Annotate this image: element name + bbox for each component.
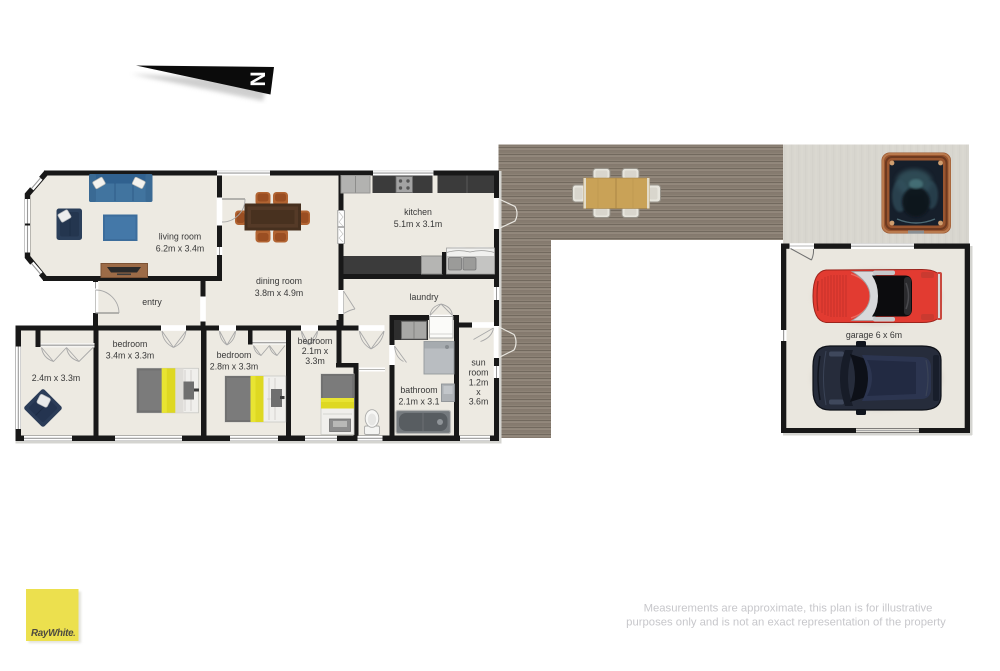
svg-text:dining room: dining room [256, 276, 302, 286]
svg-text:3.6m: 3.6m [469, 397, 489, 407]
svg-text:bedroom: bedroom [217, 350, 252, 360]
svg-text:2.8m x 3.3m: 2.8m x 3.3m [210, 362, 258, 372]
svg-text:garage 6 x 6m: garage 6 x 6m [846, 330, 902, 340]
svg-text:bathroom: bathroom [400, 385, 437, 395]
svg-text:RayWhite.: RayWhite. [31, 628, 75, 639]
svg-text:laundry: laundry [410, 292, 439, 302]
svg-text:kitchen: kitchen [404, 207, 432, 217]
svg-text:living room: living room [159, 232, 202, 242]
svg-text:x: x [476, 387, 481, 397]
svg-text:5.1m x 3.1m: 5.1m x 3.1m [394, 219, 442, 229]
svg-text:sun: sun [471, 358, 485, 368]
svg-text:N: N [245, 71, 268, 86]
svg-text:purposes only and is not an ex: purposes only and is not an exact repres… [626, 617, 946, 629]
svg-text:bedroom: bedroom [298, 336, 333, 346]
svg-text:room: room [468, 368, 488, 378]
svg-text:2.4m x 3.3m: 2.4m x 3.3m [32, 373, 80, 383]
svg-text:bedroom: bedroom [113, 339, 148, 349]
svg-text:3.8m x 4.9m: 3.8m x 4.9m [255, 288, 303, 298]
svg-text:1.2m: 1.2m [469, 378, 489, 388]
svg-text:3.4m x 3.3m: 3.4m x 3.3m [106, 351, 154, 361]
svg-text:6.2m x 3.4m: 6.2m x 3.4m [156, 244, 204, 254]
svg-text:Measurements are approximate,: Measurements are approximate, this plan … [644, 603, 933, 615]
svg-text:2.1m x: 2.1m x [302, 346, 329, 356]
svg-text:entry: entry [142, 297, 162, 307]
svg-text:3.3m: 3.3m [305, 356, 325, 366]
svg-text:2.1m x 3.1: 2.1m x 3.1 [398, 397, 439, 407]
